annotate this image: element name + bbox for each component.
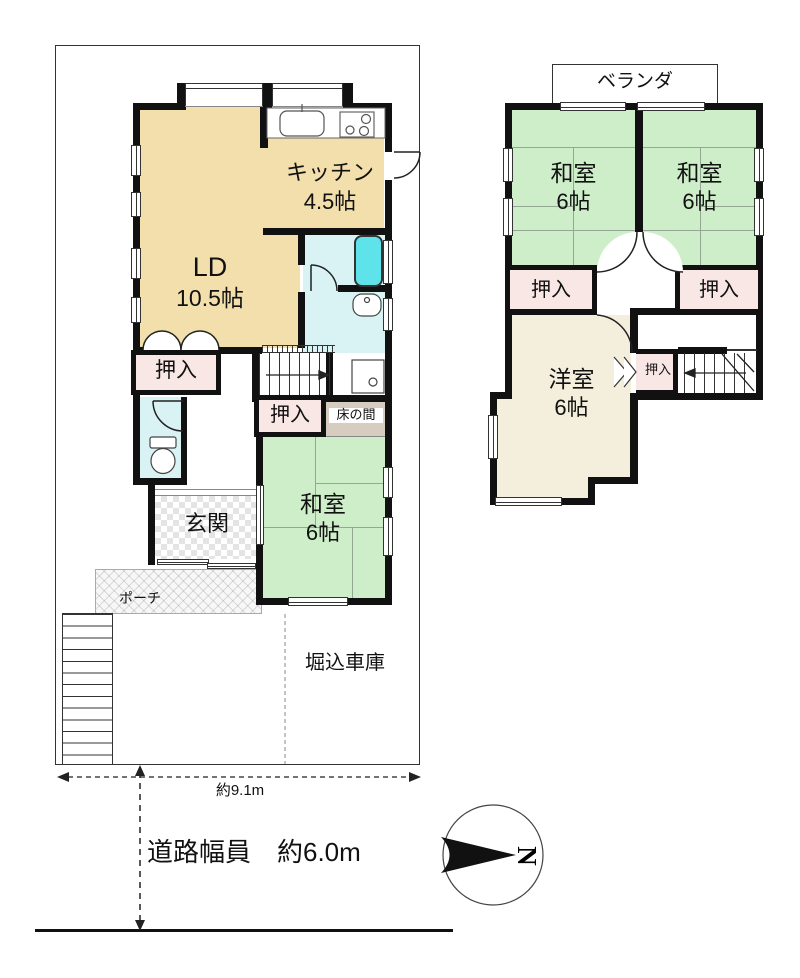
- closet-label: 押入: [133, 359, 219, 383]
- room-label-washitsu1: 和室: [262, 491, 384, 517]
- site-width-dimension: [57, 772, 421, 782]
- compass: N: [441, 805, 543, 905]
- room-size-ld: 10.5帖: [150, 285, 270, 311]
- hall-opening: [597, 232, 683, 272]
- compass-needle-icon: [441, 837, 516, 873]
- room-size-washitsu1: 6帖: [262, 520, 384, 545]
- garage-label: 堀込車庫: [290, 652, 400, 675]
- bathtub-icon: [355, 236, 382, 286]
- closet-label: 押入: [258, 404, 322, 427]
- stairs-arrow-1f: [266, 371, 329, 379]
- porch-label: ポーチ: [100, 590, 180, 606]
- room-label-kitchen: キッチン: [270, 160, 390, 185]
- room-size-washitsu2-left: 6帖: [512, 189, 635, 214]
- road-width-label: 道路幅員 約6.0m: [147, 838, 361, 868]
- washing-machine-icon: [352, 360, 384, 393]
- toilet-icon: [150, 437, 176, 474]
- room-size-washitsu2-right: 6帖: [643, 189, 756, 214]
- room-size-youshitsu: 6帖: [512, 395, 631, 420]
- stove-icon: [340, 112, 374, 137]
- genkan-label: 玄関: [158, 511, 256, 536]
- ld-closet-doors: [143, 331, 219, 350]
- kitchen-counter: [267, 104, 385, 138]
- closet-label: 押入: [509, 279, 593, 302]
- youshitsu-door: [597, 315, 632, 352]
- veranda-label: ベランダ: [552, 71, 718, 93]
- plan-overlay: N: [0, 0, 800, 978]
- road-width-dimension: [135, 765, 145, 931]
- bathroom-door: [311, 265, 337, 291]
- room-label-youshitsu: 洋室: [512, 366, 631, 392]
- kitchen-back-door: [394, 152, 420, 178]
- floor-plan-page: N LD 10.5帖 キッチン 4.5帖 押入 押入 床の間 和室 6帖 玄関 …: [0, 0, 800, 978]
- compass-north-label: N: [512, 846, 542, 866]
- room-label-washitsu2-left: 和室: [512, 160, 635, 186]
- washbasin-icon: [353, 294, 381, 316]
- room-size-kitchen: 4.5帖: [270, 189, 390, 214]
- stairs-arrow-2f: [685, 354, 754, 391]
- closet-small-label: 押入: [639, 363, 677, 378]
- tokonoma-label: 床の間: [329, 408, 383, 423]
- closet-label: 押入: [679, 279, 759, 302]
- site-width-label: 約9.1m: [180, 782, 300, 799]
- room-label-ld: LD: [150, 252, 270, 283]
- toilet-door: [153, 401, 183, 431]
- room-label-washitsu2-right: 和室: [643, 160, 756, 186]
